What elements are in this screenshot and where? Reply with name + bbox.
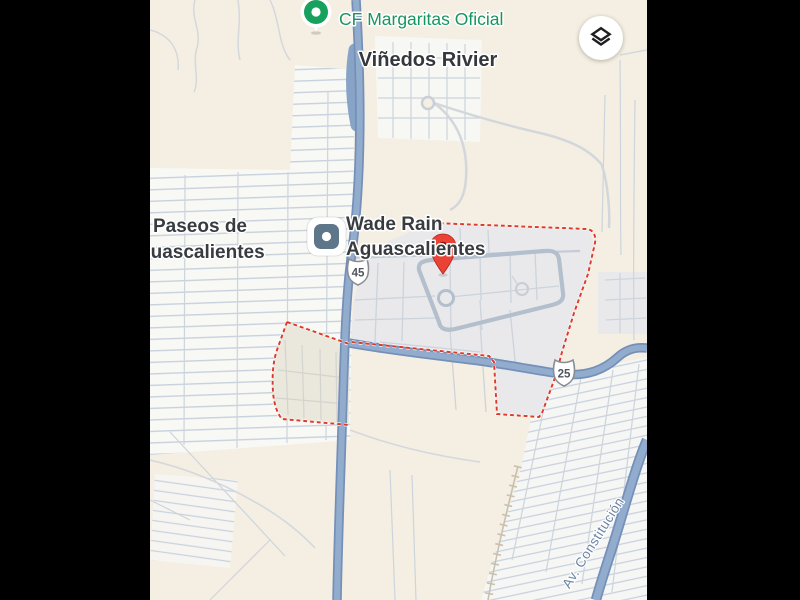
layers-icon	[588, 25, 614, 51]
map-svg: 45 25	[150, 0, 647, 600]
layers-button[interactable]	[579, 16, 623, 60]
svg-text:Paseos de: Paseos de	[153, 216, 247, 237]
svg-text:Aguascalientes: Aguascalientes	[346, 239, 485, 260]
shield-45-number: 45	[352, 268, 365, 280]
roundabout-north	[422, 97, 434, 109]
map-canvas[interactable]: 45 25	[150, 0, 647, 600]
letterbox-right	[647, 0, 800, 600]
business-poi-icon[interactable]	[307, 217, 346, 256]
letterbox-left	[0, 0, 150, 600]
svg-text:Wade Rain: Wade Rain	[346, 214, 442, 235]
screenshot-stage: 45 25	[0, 0, 800, 600]
svg-text:Aguascalientes: Aguascalientes	[150, 242, 265, 263]
shield-25-number: 25	[558, 369, 571, 381]
roundabout-industrial	[439, 291, 454, 306]
green-poi-label[interactable]: CF Margaritas Oficial	[339, 9, 503, 29]
locality-label[interactable]: Viñedos Rivier	[359, 49, 498, 71]
